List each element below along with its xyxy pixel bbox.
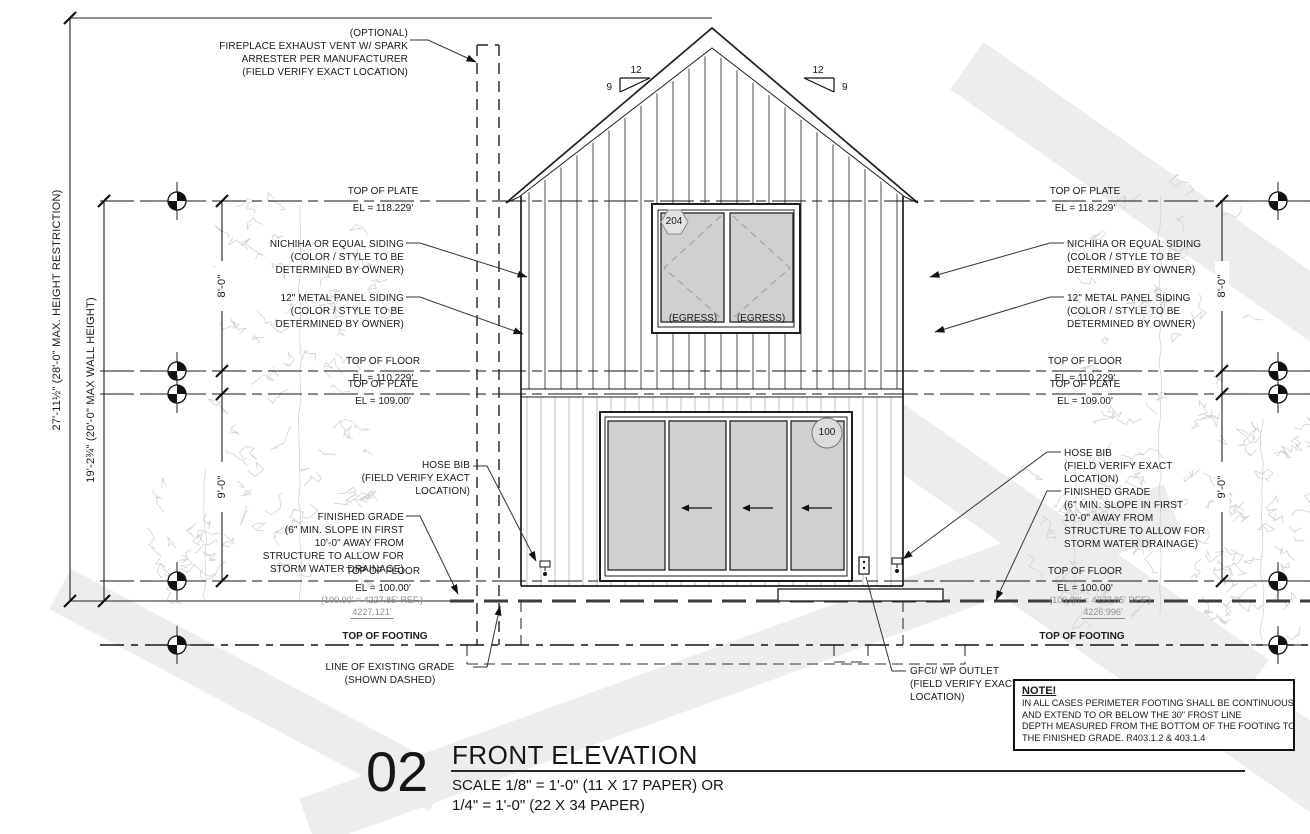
elevation-sheet: 12 9 12 9 27'-11½" (28'-0" MAX. HEIGHT R… (0, 0, 1310, 834)
scale-line-2: 1/4" = 1'-0" (22 X 34 PAPER) (452, 797, 645, 815)
door-tag: 100 (809, 427, 845, 439)
dim-overall-height: 27'-11½" (28'-0" MAX. HEIGHT RESTRICTION… (50, 130, 64, 490)
dim-wall-height: 19'-2¾" (20'-0" MAX WALL HEIGHT) (84, 240, 98, 540)
note-box: NOTE! IN ALL CASES PERIMETER FOOTING SHA… (1013, 679, 1295, 751)
level-datum-icon (150, 375, 204, 413)
detail-number: 02 (366, 744, 428, 800)
leader-existinggrade (473, 606, 500, 667)
pitch-rise-left: 9 (606, 82, 612, 93)
callout-hosebib-left: HOSE BIB(FIELD VERIFY EXACTLOCATION) (362, 459, 470, 498)
callout-nichiha-right: NICHIHA OR EQUAL SIDING(COLOR / STYLE TO… (1067, 238, 1201, 277)
level-elevation: EL = 118.229' (293, 203, 473, 215)
gfci-outlet-icon (859, 557, 869, 574)
dim-upper-floor-right: 8'-0" (1215, 261, 1229, 311)
level-label: TOP OF FLOOR (293, 356, 473, 368)
callout-finishedgrade-left: FINISHED GRADE(6" MIN. SLOPE IN FIRST 10… (263, 511, 404, 576)
floor-band (521, 389, 903, 397)
level-label: TOP OF PLATE (995, 379, 1175, 391)
callout-metal-right: 12" METAL PANEL SIDING(COLOR / STYLE TO … (1067, 292, 1196, 331)
level-elevation: EL = 118.229' (995, 203, 1175, 215)
level-label: TOP OF PLATE (293, 186, 473, 198)
level-elevation: EL = 109.00' (293, 396, 473, 408)
note-heading: NOTE! (1022, 684, 1286, 698)
title-underline (451, 770, 1245, 772)
callout-hosebib-right: HOSE BIB(FIELD VERIFY EXACTLOCATION) (1064, 447, 1172, 486)
stoop (778, 589, 943, 601)
level-label: TOP OF FOOTING (992, 631, 1172, 643)
level-datum-icon (1251, 375, 1305, 413)
spot-elevation: 4226.996' (1013, 606, 1193, 619)
leader-metal-right (935, 297, 1064, 332)
dim-lower-floor-left: 9'-0" (215, 462, 229, 512)
drawing-title: FRONT ELEVATION (452, 741, 698, 769)
level-datum-icon (1251, 182, 1305, 220)
level-label: TOP OF PLATE (293, 379, 473, 391)
level-label: TOP OF FOOTING (295, 631, 475, 643)
window-tag: 204 (656, 216, 692, 228)
callout-finishedgrade-right: FINISHED GRADE(6" MIN. SLOPE IN FIRST 10… (1064, 486, 1205, 551)
dim-upper-floor-left: 8'-0" (215, 261, 229, 311)
spot-elevation: 4227.121' (282, 606, 462, 619)
egress-label-right: (EGRESS) (729, 313, 793, 325)
pitch-rise-right: 9 (842, 82, 848, 93)
leader-fireplace (410, 40, 476, 62)
level-elevation: EL = 109.00' (995, 396, 1175, 408)
egress-label-left: (EGRESS) (661, 313, 725, 325)
callout-metal-left: 12" METAL PANEL SIDING(COLOR / STYLE TO … (276, 292, 405, 331)
leader-nichiha-left (406, 243, 527, 277)
callout-fireplace: (OPTIONAL)FIREPLACE EXHAUST VENT W/ SPAR… (219, 27, 408, 79)
level-label: TOP OF FLOOR (995, 566, 1175, 578)
level-datum-icon (150, 182, 204, 220)
leader-nichiha-right (930, 243, 1064, 277)
callout-nichiha-left: NICHIHA OR EQUAL SIDING(COLOR / STYLE TO… (270, 238, 404, 277)
fireplace-vent-chimney (477, 45, 499, 645)
level-label: TOP OF PLATE (995, 186, 1175, 198)
leader-metal-left (406, 297, 523, 334)
level-datum-icon (1251, 562, 1305, 600)
level-reference: (100.00' = 4227.85' REF.) (282, 594, 462, 606)
level-reference: (100.00' = 4227.85' REF.) (1010, 594, 1190, 606)
scale-line-1: SCALE 1/8" = 1'-0" (11 X 17 PAPER) OR (452, 777, 724, 795)
dim-lower-floor-right: 9'-0" (1215, 462, 1229, 512)
callout-existinggrade: LINE OF EXISTING GRADE(SHOWN DASHED) (280, 661, 500, 687)
level-datum-icon (150, 562, 204, 600)
pitch-run-right: 12 (812, 65, 824, 76)
pitch-run-left: 12 (630, 65, 642, 76)
level-label: TOP OF FLOOR (995, 356, 1175, 368)
callout-gfci: GFCI/ WP OUTLET(FIELD VERIFY EXACTLOCATI… (910, 665, 1018, 704)
